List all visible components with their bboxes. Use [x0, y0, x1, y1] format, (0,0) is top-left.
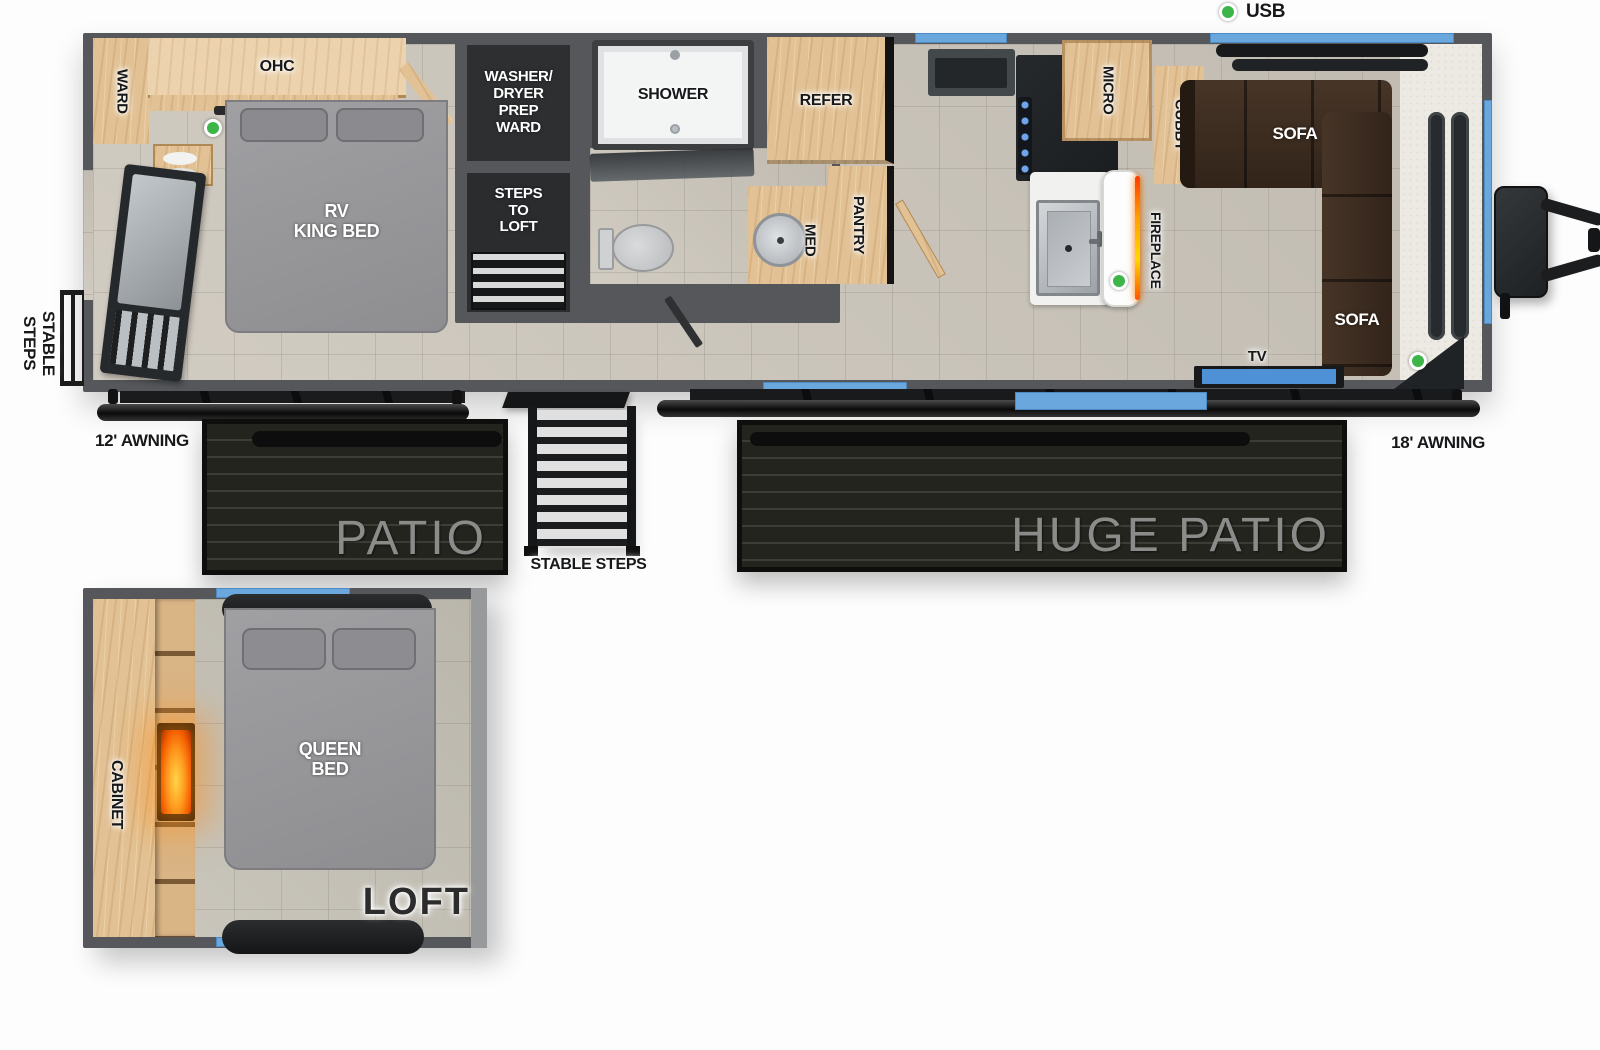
overhead-cabinet-label: OHC [148, 38, 406, 95]
hitch-coupler [1588, 228, 1600, 252]
sofa-top-label: SOFA [1230, 120, 1360, 148]
kitchen-sink [1036, 200, 1100, 296]
patio-label: PATIO [335, 511, 487, 566]
washer-dryer-label: WASHER/ DRYER PREP WARD [467, 45, 570, 161]
king-pillow-right [336, 108, 424, 142]
shower-label: SHOWER [592, 60, 754, 130]
window-top-front [1210, 33, 1454, 43]
queen-pillow-left [242, 628, 326, 670]
ladder-rail-left [528, 406, 537, 550]
rear-step-railing [60, 290, 84, 386]
loft-name-label: LOFT [330, 880, 470, 924]
king-bed-label: RV KING BED [225, 192, 448, 250]
microwave-label: MICRO [1062, 40, 1152, 141]
huge-patio-rail [750, 432, 1250, 446]
shower-glass-door [590, 148, 755, 182]
patio-door-mat [1015, 392, 1207, 410]
entry-door-grab-rail [110, 310, 180, 371]
sofa-side-label: SOFA [1322, 306, 1392, 334]
usb-legend-label: USB [1246, 0, 1306, 24]
med-label: MED [794, 214, 824, 266]
front-window-panel-2 [1451, 112, 1469, 340]
loft-right-wall [471, 588, 487, 948]
ladder-platform [502, 392, 630, 408]
pantry-label: PANTRY [828, 166, 887, 284]
huge-patio-label: HUGE PATIO [1011, 508, 1330, 563]
shower-head [670, 50, 680, 60]
loft-stairs [471, 252, 566, 310]
patio-rail [252, 431, 502, 447]
queen-bed-label: QUEEN BED [224, 732, 436, 786]
window-top-kitchen [915, 33, 1007, 43]
front-window-bar-1 [1216, 44, 1428, 57]
loft-fireplace [157, 723, 195, 821]
loft-cabinet-label: CABINET [101, 742, 131, 848]
awning-arms-left [120, 391, 465, 403]
sink-drain [777, 237, 784, 244]
awning-right-label: 18' AWNING [1365, 433, 1485, 453]
front-window-panel-1 [1428, 112, 1445, 340]
awning-peg [452, 390, 462, 405]
fireplace-flame-strip [1135, 176, 1140, 300]
refrigerator-label: REFER [767, 37, 885, 164]
awning-left-label: 12' AWNING [95, 431, 215, 451]
front-window-bar-2 [1232, 59, 1428, 71]
wardrobe-label: WARD [93, 38, 149, 144]
sofa-vertical [1322, 112, 1392, 376]
stabilizer-leg [1500, 293, 1510, 319]
range-hood [928, 49, 1015, 96]
loft-fireplace-flame [161, 730, 191, 814]
usb-dot-bedroom [204, 119, 222, 137]
hitch-jack [1494, 186, 1548, 298]
ladder-rungs [537, 410, 627, 548]
center-steps-label: STABLE STEPS [516, 555, 661, 575]
huge-patio-deck: HUGE PATIO [737, 420, 1347, 572]
ladder-rail-right [627, 406, 636, 550]
stove-burners [1018, 97, 1032, 175]
sofa-armrest [1180, 80, 1195, 188]
tv-screen [1202, 369, 1336, 384]
tv-label: TV [1227, 348, 1287, 366]
usb-dot-living [1409, 352, 1427, 370]
toilet [612, 224, 674, 272]
fireplace-label: FIREPLACE [1142, 198, 1168, 302]
loft-bolster-bottom [222, 920, 424, 954]
awning-peg [108, 389, 118, 404]
rear-door-opening [83, 170, 93, 300]
plate [163, 152, 197, 165]
rear-steps-label: STABLE STEPS [25, 282, 53, 404]
sink-drain [1065, 245, 1072, 252]
entry-door-glass [117, 174, 196, 311]
rv-floorplan: USB WARD OHC RV KING BED WASHER/ DRYER P… [0, 0, 1600, 1050]
queen-pillow-right [332, 628, 416, 670]
hitch-arm-bottom [1540, 253, 1600, 282]
usb-legend-dot [1219, 3, 1237, 21]
patio-deck: PATIO [202, 419, 508, 575]
hitch-arm-top [1540, 197, 1600, 226]
range-hood-vent [935, 58, 1007, 88]
window-front-wall [1484, 100, 1492, 324]
usb-dot-fireplace [1110, 272, 1128, 290]
king-pillow-left [240, 108, 328, 142]
steps-to-loft-label: STEPS TO LOFT [467, 178, 570, 244]
